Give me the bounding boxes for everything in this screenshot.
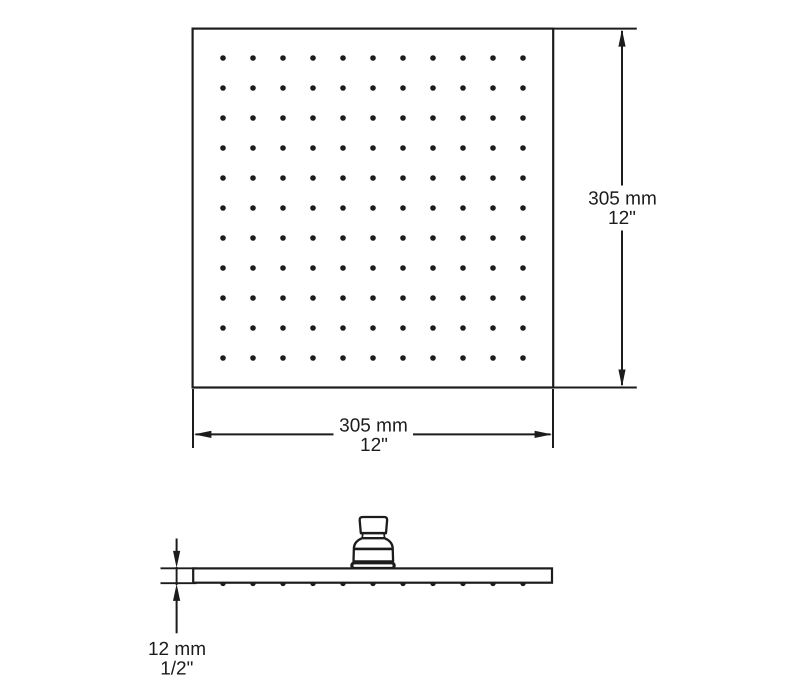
svg-text:12": 12" (360, 435, 388, 456)
svg-text:12 mm: 12 mm (148, 639, 206, 660)
svg-text:305 mm: 305 mm (339, 416, 408, 437)
svg-text:12": 12" (608, 208, 636, 229)
svg-text:1/2": 1/2" (160, 659, 193, 680)
svg-text:305 mm: 305 mm (588, 189, 657, 210)
